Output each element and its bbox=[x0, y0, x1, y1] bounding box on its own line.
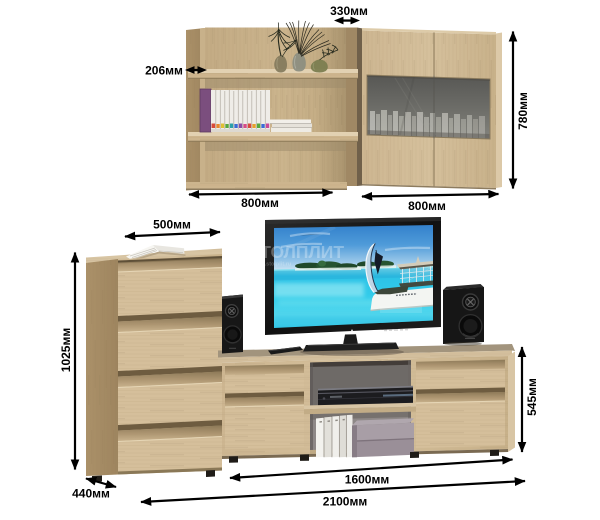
svg-text:440мм: 440мм bbox=[72, 487, 110, 501]
svg-text:780мм: 780мм bbox=[516, 92, 530, 130]
svg-text:1600мм: 1600мм bbox=[345, 473, 390, 487]
svg-text:545мм: 545мм bbox=[525, 378, 539, 416]
svg-text:206мм: 206мм bbox=[145, 64, 183, 78]
svg-text:www.stolplit.ru: www.stolplit.ru bbox=[251, 262, 291, 268]
svg-text:1025мм: 1025мм bbox=[59, 328, 73, 373]
svg-text:2100мм: 2100мм bbox=[323, 495, 368, 509]
svg-text:800мм: 800мм bbox=[241, 196, 279, 210]
svg-text:500мм: 500мм bbox=[153, 218, 191, 232]
svg-text:СТОЛПЛИТ: СТОЛПЛИТ bbox=[248, 242, 344, 262]
svg-text:330мм: 330мм bbox=[330, 4, 368, 18]
svg-text:800мм: 800мм bbox=[408, 199, 446, 213]
